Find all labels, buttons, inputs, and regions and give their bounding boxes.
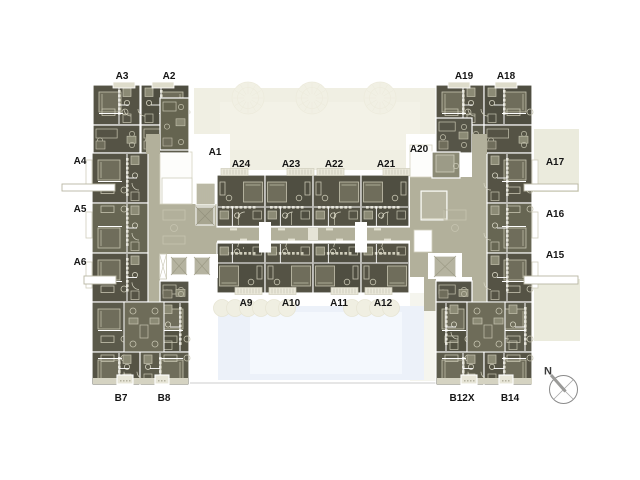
svg-text:A5: A5: [74, 204, 87, 215]
svg-text:A4: A4: [74, 156, 87, 167]
svg-text:B14: B14: [501, 393, 520, 404]
svg-text:A22: A22: [325, 159, 344, 170]
svg-text:B8: B8: [158, 393, 171, 404]
svg-text:A23: A23: [282, 159, 301, 170]
svg-text:A18: A18: [497, 71, 516, 82]
svg-text:A17: A17: [546, 157, 565, 168]
svg-text:N: N: [544, 366, 552, 378]
svg-text:A24: A24: [232, 159, 251, 170]
svg-text:A10: A10: [282, 298, 301, 309]
svg-text:A11: A11: [330, 298, 348, 309]
svg-text:A6: A6: [74, 257, 87, 268]
svg-text:A21: A21: [377, 159, 396, 170]
svg-text:A12: A12: [374, 298, 393, 309]
svg-text:A3: A3: [116, 71, 129, 82]
svg-text:A19: A19: [455, 71, 474, 82]
svg-text:A20: A20: [410, 144, 429, 155]
svg-text:A9: A9: [240, 298, 253, 309]
svg-text:B12X: B12X: [449, 393, 474, 404]
svg-text:A1: A1: [209, 147, 222, 158]
svg-text:B7: B7: [115, 393, 128, 404]
svg-text:A2: A2: [163, 71, 176, 82]
svg-text:A15: A15: [546, 250, 565, 261]
svg-text:A16: A16: [546, 209, 565, 220]
